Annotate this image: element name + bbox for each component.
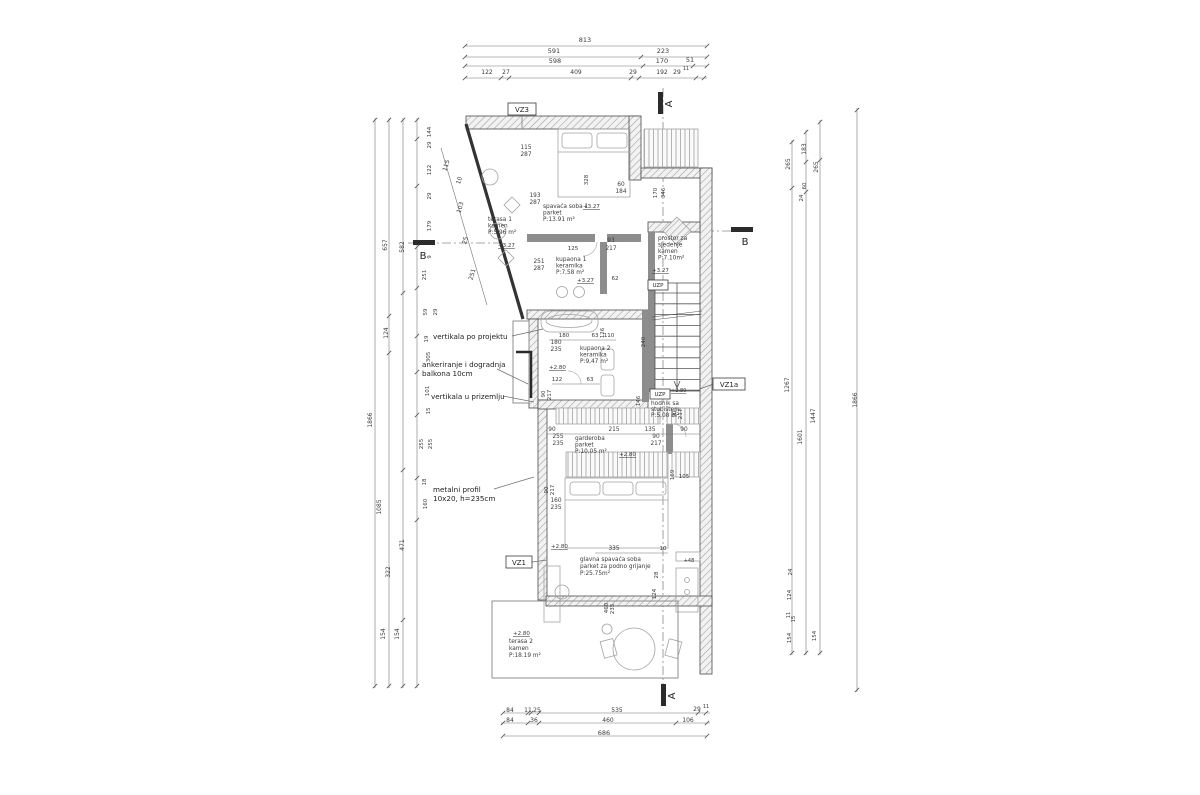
elevation-mark: +2.80 bbox=[513, 631, 530, 637]
dim-label: 11 bbox=[683, 66, 689, 72]
floor-plan-page: 8135912235981705112227409291922911841125… bbox=[0, 0, 1200, 795]
dim-label: 63 bbox=[592, 333, 599, 339]
bed-main bbox=[565, 478, 668, 548]
annotation-label: vertikala po projektu bbox=[433, 332, 508, 341]
dim-label: 255 bbox=[419, 438, 425, 449]
room-label: P:25.75m² bbox=[580, 570, 610, 577]
dim-label: 251 bbox=[468, 268, 478, 281]
dim-label: 93 bbox=[607, 238, 615, 244]
dim-label: 135 bbox=[644, 427, 655, 433]
dim-label: 29 bbox=[427, 141, 433, 148]
dim-label: 217 bbox=[605, 246, 616, 252]
dim-label: 51 bbox=[686, 56, 694, 64]
dim-label: 335 bbox=[608, 546, 619, 552]
dim-label: 126 bbox=[600, 327, 606, 338]
detail-marker-label: VZ1 bbox=[512, 559, 526, 567]
dim-label: 235 bbox=[550, 347, 561, 353]
furniture bbox=[482, 129, 700, 670]
dim-label: 217 bbox=[650, 441, 661, 447]
room-label: parket bbox=[575, 443, 594, 449]
dim-label: 255 bbox=[428, 438, 434, 449]
dim-label: 251 bbox=[533, 259, 544, 265]
room-label: P:5,08 m² bbox=[651, 412, 679, 419]
room-label: kupaona 2 bbox=[580, 346, 611, 352]
dim-label: 10 bbox=[660, 546, 667, 552]
section-b-left bbox=[413, 240, 435, 245]
dim-label: 146 bbox=[636, 395, 642, 406]
elevation-mark: +2.80 bbox=[671, 388, 686, 394]
dim-label: 122 bbox=[552, 377, 563, 383]
section-b-right bbox=[731, 227, 753, 232]
dim-label: 154 bbox=[394, 628, 401, 640]
dim-label: 36 bbox=[530, 717, 538, 724]
dim-label: 90 bbox=[548, 427, 556, 433]
dim-label: 62 bbox=[612, 276, 619, 282]
dim-label: 265 bbox=[785, 158, 792, 170]
dim-label: 287 bbox=[520, 152, 531, 158]
room-label: kamen bbox=[658, 249, 678, 255]
room-label: terasa 2 bbox=[509, 639, 533, 645]
dim-label: 19 bbox=[424, 335, 430, 342]
section-a-top bbox=[658, 92, 663, 114]
dim-label: 15 bbox=[426, 407, 432, 414]
room-label: stubištem bbox=[651, 406, 680, 413]
dim-label: 217 bbox=[550, 484, 556, 495]
section-a-bottom bbox=[661, 684, 666, 706]
balcony bbox=[513, 321, 529, 403]
dim-label: 84 bbox=[506, 707, 514, 714]
dim-label: 29 bbox=[427, 192, 433, 199]
annotation-label: balkona 10cm bbox=[422, 369, 473, 378]
dim-label: 287 bbox=[529, 200, 540, 206]
dim-label: 1267 bbox=[784, 377, 791, 392]
dim-label: 122 bbox=[481, 69, 493, 76]
detail-marker-label: UZP bbox=[654, 392, 666, 398]
dim-label: 686 bbox=[598, 729, 610, 737]
sink bbox=[574, 287, 585, 298]
dim-label: 144 bbox=[427, 126, 433, 137]
dim-label: 1601 bbox=[797, 429, 804, 444]
dim-label: 124 bbox=[787, 589, 793, 600]
dim-label: 29 bbox=[673, 69, 681, 76]
elevation-mark: +3.27 bbox=[577, 278, 594, 284]
terrace-table bbox=[613, 628, 655, 670]
section-letter: A bbox=[667, 692, 678, 699]
elevation-mark: +2.80 bbox=[551, 544, 568, 550]
dim-label: 29 bbox=[433, 308, 439, 315]
dim-label: 235 bbox=[552, 441, 563, 447]
section-letter: B bbox=[420, 251, 427, 262]
dim-label: 179 bbox=[427, 220, 433, 231]
dim-label: 193 bbox=[529, 193, 540, 199]
annotation-label: ankeriranje i dogradnja bbox=[422, 360, 506, 369]
room-label: P:7,58 m² bbox=[556, 269, 584, 276]
dim-label: 183 bbox=[801, 143, 808, 155]
dim-label: 15 bbox=[791, 616, 797, 622]
dim-label: 535 bbox=[611, 707, 623, 714]
dim-label: 409 bbox=[570, 69, 582, 76]
dim-label: 29 bbox=[629, 69, 637, 76]
dim-label: 322 bbox=[385, 566, 392, 578]
dim-label: 18 bbox=[422, 478, 428, 485]
dim-label: 598 bbox=[549, 57, 561, 65]
dim-label: 90 bbox=[680, 427, 688, 433]
dim-label: 251 bbox=[422, 270, 428, 281]
closet-band bbox=[566, 452, 668, 477]
dim-label: 11 bbox=[703, 704, 709, 710]
dim-label: 235 bbox=[610, 603, 616, 614]
wardrobe bbox=[644, 129, 698, 167]
dim-label: 25 bbox=[533, 707, 541, 714]
elevation-mark: +2.80 bbox=[549, 365, 566, 371]
dim-label: 60 bbox=[802, 182, 808, 189]
dim-label: 184 bbox=[615, 189, 626, 195]
elevation-mark: +3.27 bbox=[583, 204, 600, 210]
dim-label: 124 bbox=[652, 588, 658, 599]
dim-label: 265 bbox=[813, 161, 820, 173]
dim-label: 255 bbox=[552, 434, 563, 440]
dim-label: 59 bbox=[423, 308, 429, 315]
detail-marker-label: VZ3 bbox=[515, 106, 529, 114]
dim-label: 217 bbox=[547, 389, 553, 400]
room-label: sjedenje bbox=[658, 243, 683, 249]
dim-label: 235 bbox=[550, 505, 561, 511]
room-label: terasa 1 bbox=[488, 217, 512, 223]
elevation-mark: +3.27 bbox=[652, 268, 669, 274]
dim-label: 122 bbox=[427, 165, 433, 176]
detail-marker-label: UZP bbox=[652, 283, 664, 289]
annotation-labels: vertikala po projektuankeriranje i dogra… bbox=[422, 332, 508, 503]
dim-label: 124 bbox=[383, 327, 390, 339]
room-label: spavaća soba 1 bbox=[543, 203, 588, 210]
dim-label: 813 bbox=[579, 36, 591, 44]
dim-label: 240 bbox=[641, 336, 647, 347]
dim-label: 90 bbox=[652, 434, 660, 440]
dim-label: 25 bbox=[461, 236, 470, 246]
dim-label: 460 bbox=[602, 717, 614, 724]
room-label: P:13.91 m² bbox=[543, 216, 575, 223]
annotation-label: metalni profil bbox=[433, 485, 481, 494]
dim-label: +48 bbox=[684, 558, 695, 564]
room-label: kamen bbox=[488, 224, 508, 230]
dim-label: 105 bbox=[679, 474, 690, 480]
elevation-mark: +2.80 bbox=[619, 452, 636, 458]
room-label: P:10,05 m² bbox=[575, 448, 607, 455]
dim-label: 328 bbox=[584, 174, 590, 185]
elevation-mark: +3.27 bbox=[498, 243, 515, 249]
dim-label: 169 bbox=[670, 469, 676, 480]
dim-label: 28 bbox=[654, 571, 660, 578]
staircase bbox=[652, 283, 702, 391]
dim-label: 27 bbox=[502, 69, 510, 76]
room-label: P:7.10m² bbox=[658, 255, 684, 262]
dim-label: 84 bbox=[506, 717, 514, 724]
dim-label: 154 bbox=[787, 632, 793, 643]
room-label: P:5.96 m² bbox=[488, 229, 516, 236]
room-label: prostor za bbox=[658, 236, 688, 242]
dim-label: 115 bbox=[520, 145, 531, 151]
dim-label: 582 bbox=[399, 241, 406, 253]
floor-plan-svg: 8135912235981705112227409291922911841125… bbox=[0, 0, 1200, 795]
dim-label: 10 bbox=[455, 176, 464, 186]
room-label: parket za podno grijanje bbox=[580, 564, 651, 570]
dim-label: 24 bbox=[799, 194, 805, 201]
dim-label: 29 bbox=[693, 706, 701, 713]
annotation-label: 10x20, h=235cm bbox=[433, 494, 495, 503]
room-label: keramika bbox=[556, 264, 583, 270]
dim-label: 160 bbox=[423, 498, 429, 509]
room-label: P:18.19 m² bbox=[509, 652, 541, 659]
dim-label: 154 bbox=[380, 628, 387, 640]
dim-label: 1085 bbox=[376, 499, 383, 514]
dim-label: 154 bbox=[812, 630, 818, 641]
dim-label: 106 bbox=[682, 717, 694, 724]
dim-label: 287 bbox=[533, 266, 544, 272]
dim-label: 170 bbox=[656, 57, 668, 65]
room-label: garderoba bbox=[575, 436, 605, 442]
room-label: kupaona 1 bbox=[556, 257, 587, 263]
dim-label: 160 bbox=[550, 498, 561, 504]
dim-label: 346 bbox=[661, 187, 667, 198]
annotation-label: vertikala u prizemlju bbox=[431, 392, 505, 401]
section-letter: A bbox=[664, 100, 675, 107]
dim-label: 591 bbox=[548, 47, 560, 55]
dim-label: 170 bbox=[653, 187, 659, 198]
closet-band bbox=[556, 408, 660, 424]
dim-label: 192 bbox=[656, 69, 668, 76]
dim-label: 125 bbox=[568, 246, 579, 252]
dim-label: 24 bbox=[788, 568, 794, 575]
dim-label: 215 bbox=[608, 427, 619, 433]
section-letter: B bbox=[742, 237, 749, 248]
dim-label: 180 bbox=[550, 340, 561, 346]
room-label: P:9,47 m² bbox=[580, 358, 608, 365]
room-label: glavna spavaća soba bbox=[580, 556, 641, 563]
dim-label: 180 bbox=[559, 333, 570, 339]
dim-label: 9 bbox=[427, 255, 433, 259]
dim-label: 471 bbox=[399, 539, 406, 551]
terrace-chair bbox=[665, 639, 682, 659]
room-label: keramika bbox=[580, 353, 607, 359]
dim-label: 63 bbox=[587, 377, 594, 383]
dim-label: 223 bbox=[657, 47, 669, 55]
dim-label: 657 bbox=[382, 239, 389, 251]
dim-label: 1866 bbox=[367, 412, 374, 427]
dim-label: 1866 bbox=[852, 392, 859, 407]
dim-label: 60 bbox=[617, 182, 625, 188]
dim-label: 115 bbox=[442, 159, 452, 172]
room-label: kamen bbox=[509, 646, 529, 652]
detail-marker-label: VZ1a bbox=[720, 381, 738, 389]
dim-label: 1447 bbox=[810, 408, 817, 423]
dimension-labels: 8135912235981705112227409291922911841125… bbox=[367, 36, 859, 737]
room-label: parket bbox=[543, 211, 562, 217]
sink bbox=[557, 287, 568, 298]
